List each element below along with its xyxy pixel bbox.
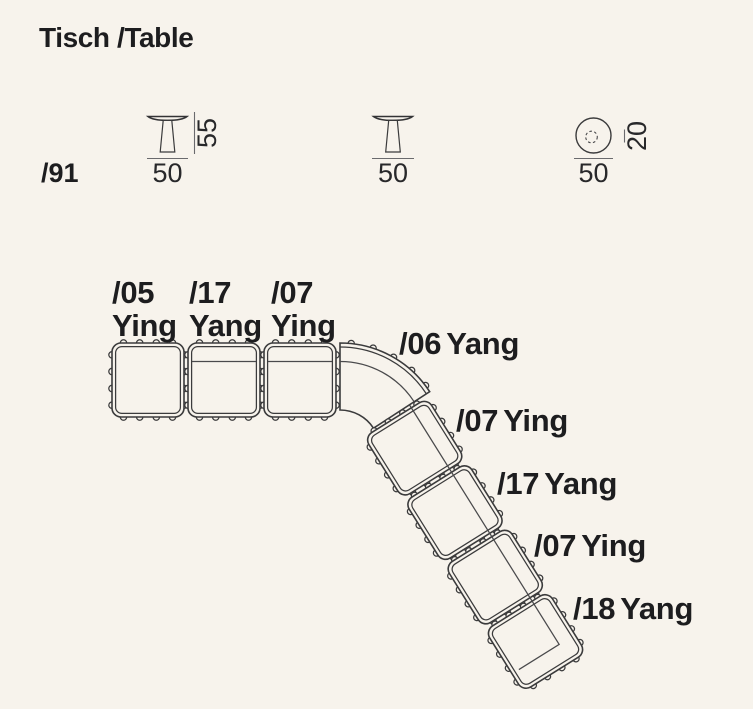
width-dim-value: 50: [378, 158, 408, 188]
module-code: /17: [497, 467, 539, 500]
module-name: Ying: [112, 309, 177, 342]
sofa-module-07-ying: [261, 340, 339, 420]
base-hidden-outline: [586, 131, 598, 143]
module-name: Yang: [544, 467, 617, 500]
width-dim-value: 50: [152, 158, 182, 188]
base-dim-value: 20: [622, 121, 652, 151]
table-side-view-b: 50: [372, 117, 414, 189]
module-outline: [264, 343, 336, 417]
table-cone-leg: [160, 120, 175, 152]
catalog-page: Tisch /Table /91 50 55 50 20 50: [0, 0, 753, 709]
label-module-07-ying-3: /07 Ying: [534, 529, 646, 562]
module-name: Ying: [581, 529, 646, 562]
sofa-module-05-ying: [109, 340, 187, 420]
label-module-17-yang: /17 Yang: [189, 276, 262, 342]
label-module-17-yang-2: /17 Yang: [497, 467, 617, 500]
module-code: /18: [573, 592, 615, 625]
label-module-06-yang: /06 Yang: [399, 327, 519, 360]
table-cone-leg: [386, 120, 401, 152]
module-name: Yang: [620, 592, 693, 625]
module-code: /07: [271, 276, 336, 309]
tabletop-outline: [576, 118, 611, 153]
label-module-05-ying: /05 Ying: [112, 276, 177, 342]
module-code: /07: [456, 404, 498, 437]
label-module-07-ying-2: /07 Ying: [456, 404, 568, 437]
module-outline: [188, 343, 260, 417]
label-module-07-ying: /07 Ying: [271, 276, 336, 342]
diameter-dim-value: 50: [578, 158, 608, 188]
module-code: /17: [189, 276, 262, 309]
module-name: Ying: [271, 309, 336, 342]
module-name: Yang: [446, 327, 519, 360]
table-side-view-a: 50 55: [147, 112, 222, 188]
module-outline: [112, 343, 184, 417]
table-top-view: 20 50: [574, 118, 652, 188]
sofa-arrangement: [109, 340, 591, 696]
module-code: /05: [112, 276, 177, 309]
sofa-module-17-yang: [185, 340, 263, 420]
module-name: Ying: [503, 404, 568, 437]
label-module-18-yang: /18 Yang: [573, 592, 693, 625]
module-name: Yang: [189, 309, 262, 342]
height-dim-value: 55: [192, 118, 222, 148]
module-code: /06: [399, 327, 441, 360]
module-code: /07: [534, 529, 576, 562]
